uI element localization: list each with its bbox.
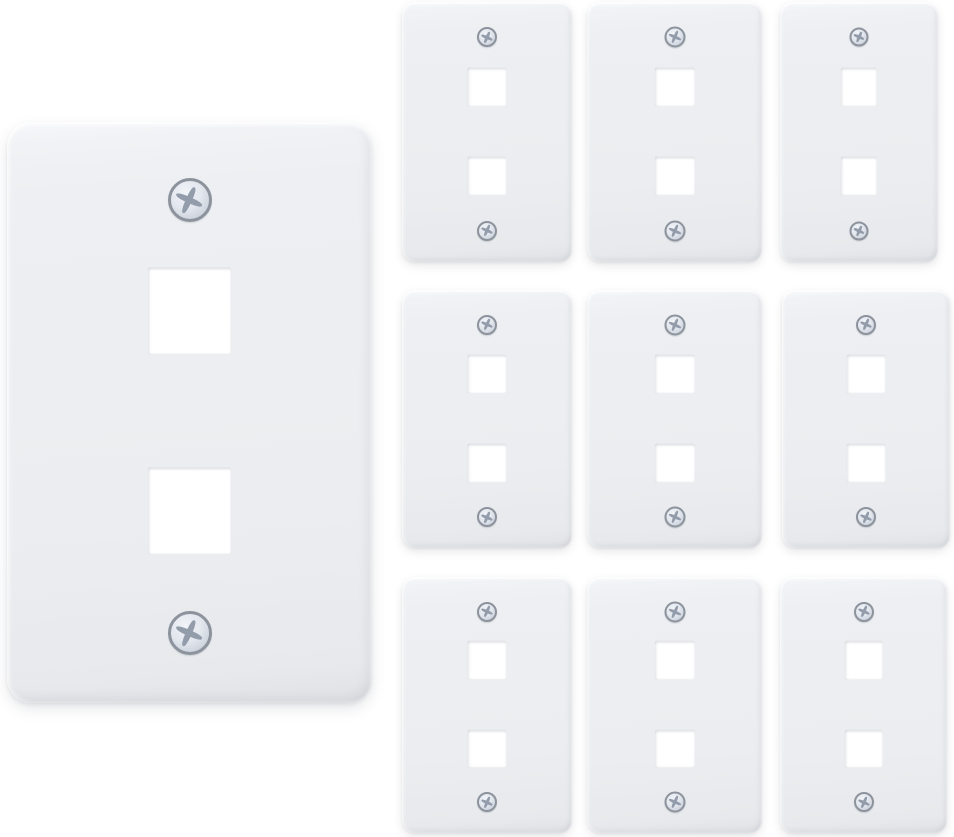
keystone-port-top [467,67,506,106]
phillips-screw-bottom [477,507,497,527]
wall-plate-small-9 [780,577,947,833]
keystone-port-bottom [654,444,694,483]
wall-plate-small-7 [402,577,572,833]
phillips-screw-bottom [477,792,497,812]
keystone-port-top [841,67,877,106]
keystone-port-bottom [847,444,886,483]
phillips-screw-top [477,315,497,335]
keystone-port-bottom [148,468,232,555]
keystone-port-bottom [841,157,877,196]
keystone-port-bottom [467,157,506,196]
phillips-screw-top [664,314,685,335]
keystone-port-top [847,355,886,394]
keystone-port-top [467,641,506,679]
phillips-screw-bottom [664,220,685,241]
phillips-screw-top [856,315,876,335]
wall-plate-small-6 [782,290,950,548]
wall-plate-small-2 [587,2,762,262]
phillips-screw-top [850,28,869,47]
product-photo [0,0,954,837]
keystone-port-bottom [467,444,506,483]
phillips-screw-top [168,178,212,222]
keystone-port-top [654,641,694,679]
keystone-port-bottom [654,729,694,767]
phillips-screw-top [477,27,497,47]
keystone-port-top [148,267,232,354]
phillips-screw-bottom [856,507,876,527]
phillips-screw-bottom [168,611,212,655]
wall-plate-small-8 [587,577,762,833]
keystone-port-bottom [844,729,882,767]
wall-plate-small-3 [780,2,938,262]
keystone-port-top [654,67,694,106]
phillips-screw-bottom [850,221,869,240]
phillips-screw-top [477,602,497,622]
phillips-screw-top [854,602,874,622]
wall-plate-large [7,122,372,703]
wall-plate-small-1 [402,2,572,262]
phillips-screw-bottom [854,792,874,812]
keystone-port-bottom [467,729,506,767]
phillips-screw-bottom [477,221,497,241]
phillips-screw-top [664,27,685,48]
wall-plate-small-4 [402,290,572,548]
keystone-port-top [844,641,882,679]
wall-plate-small-5 [587,290,762,548]
keystone-port-top [654,355,694,394]
phillips-screw-bottom [664,507,685,528]
keystone-port-top [467,355,506,394]
phillips-screw-top [664,601,685,622]
keystone-port-bottom [654,157,694,196]
phillips-screw-bottom [664,792,685,813]
